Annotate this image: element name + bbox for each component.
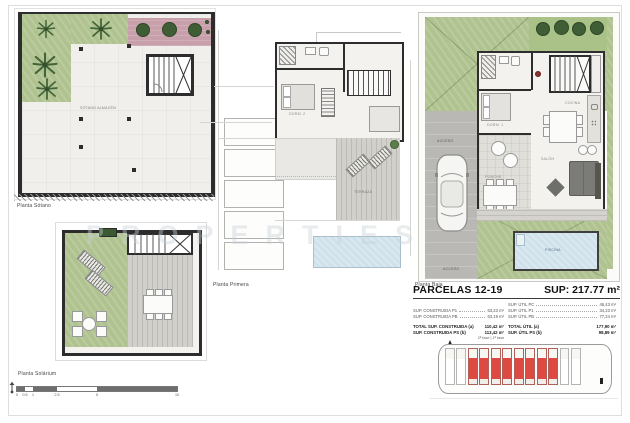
column-marker: [132, 168, 136, 172]
plan-baja: ACCESO ACCESO: [418, 12, 620, 282]
tree-icon: [590, 21, 604, 35]
table-row: SUP. CONSTRUIDA P163,23 m²: [413, 308, 508, 313]
column-marker: [79, 47, 83, 51]
neighbour-structure: [224, 242, 284, 270]
stairs-icon: [347, 70, 391, 96]
site-unit-highlighted: [537, 348, 547, 385]
chair: [72, 311, 83, 322]
scale-tick: 0: [16, 393, 18, 397]
tree-icon: [188, 23, 202, 37]
chair: [96, 311, 107, 322]
projection-line: [200, 122, 272, 123]
kitchen-counter: [587, 95, 601, 143]
chair: [146, 313, 154, 320]
scale-segment: [97, 387, 177, 391]
table-row: SUP. ÚTIL PB77,24 m²: [508, 314, 620, 319]
pillow: [483, 95, 490, 107]
table-cell-empty: [413, 302, 508, 307]
chair: [576, 115, 583, 125]
pillow: [483, 107, 490, 119]
site-units: [445, 348, 581, 385]
summary-table: PARCELAS 12-19 SUP: 217.77 m² SUP. ÚTIL …: [413, 284, 620, 340]
car-icon: [435, 153, 469, 233]
chair: [164, 289, 172, 296]
kitchen-sink: [591, 104, 598, 110]
sink: [499, 56, 509, 64]
column-marker: [127, 117, 131, 121]
table-row: SUP. CONSTRUIDA PB63,19 m²: [413, 314, 508, 319]
pool: [313, 236, 401, 268]
terrace-deck: TERRAZA: [336, 138, 400, 220]
palm-tree-icon: [34, 76, 60, 102]
neighbour-structure: [224, 211, 284, 239]
scale-segment: [17, 387, 25, 391]
pool: PISCINA: [513, 231, 599, 271]
plant-icon: [535, 71, 541, 77]
chair: [72, 326, 83, 337]
site-unit: [456, 348, 466, 385]
partition-wall: [531, 53, 533, 90]
shower: [481, 55, 496, 79]
room-label: PISCINA: [545, 248, 561, 252]
plant-icon: [390, 140, 399, 149]
plot-line: [218, 30, 219, 270]
chair: [543, 115, 550, 125]
table-row-total: SUP. CONSTRUIDA PS (b)113,42 m²: [413, 330, 508, 335]
porch: PORCHE: [479, 135, 531, 209]
scale-tick: 1: [32, 393, 34, 397]
chair: [155, 313, 163, 320]
table-row-total: TOTAL SUP. CONSTRUIDA (a)110,42 m²: [413, 324, 508, 329]
sofa-cushion-line: [583, 162, 584, 195]
planter-box: [99, 228, 117, 237]
benchmark-icon: [8, 381, 16, 394]
neighbour-structure: [224, 180, 284, 208]
room-label: COCINA: [565, 101, 580, 105]
tv-unit: [595, 163, 601, 199]
dining-table: [483, 185, 517, 206]
table-row: SUP. ÚTIL P134,23 m²: [508, 308, 620, 313]
tree-icon: [554, 20, 569, 35]
wc-closet: [591, 55, 601, 93]
round-table: [587, 145, 597, 155]
pool-steps: [516, 234, 525, 246]
chair: [496, 179, 504, 186]
lower-roof: [275, 138, 338, 180]
plan-solarium: [62, 230, 202, 356]
chair: [96, 326, 107, 337]
partition-wall: [277, 68, 343, 70]
site-unit-highlighted: [491, 348, 501, 385]
site-unit-highlighted: [525, 348, 535, 385]
armchair: [546, 178, 564, 196]
projection-line: [214, 86, 274, 87]
baja-building: DORM. 1 COCINA SALÓN: [477, 51, 605, 213]
tree-icon: [162, 22, 177, 37]
pillow: [283, 97, 291, 108]
site-unit-highlighted: [548, 348, 558, 385]
sun-lounger: [367, 145, 392, 169]
primera-building: DORM. 2: [275, 42, 404, 142]
palm-tree-icon: [35, 18, 57, 40]
room-label: ACCESO: [437, 139, 453, 143]
section-hatch: [14, 194, 214, 201]
parcel-title: PARCELAS 12-19: [413, 284, 503, 296]
driveway: ACCESO ACCESO: [425, 111, 477, 279]
site-unit-highlighted: [479, 348, 489, 385]
round-table: [82, 317, 96, 331]
room-label: ACCESO: [443, 267, 459, 271]
pool-deck: [477, 209, 607, 221]
bed: [369, 106, 400, 132]
plot-line: [218, 138, 275, 139]
bed: [481, 93, 511, 121]
site-unit: [560, 348, 570, 385]
plot-line: [275, 220, 400, 221]
summary-header: PARCELAS 12-19 SUP: 217.77 m²: [413, 284, 620, 299]
chair: [543, 127, 550, 137]
tree-icon: [136, 23, 150, 37]
palm-tree-icon: [88, 16, 114, 42]
scale-bar: 0 0.5 1 2.5 5 10: [16, 386, 178, 392]
toilet: [511, 56, 520, 66]
chair: [486, 179, 494, 186]
column-marker: [79, 117, 83, 121]
scale-tick: 2.5: [55, 393, 60, 397]
chair: [155, 289, 163, 296]
site-unit-highlighted: [468, 348, 478, 385]
shower: [279, 46, 296, 65]
site-unit: [571, 348, 581, 385]
room-label: DORM. 2: [289, 112, 305, 116]
chair: [506, 179, 514, 186]
plan-primera: DORM. 2 TERRAZA: [218, 28, 400, 275]
plan-label-sotano: Planta Sótano: [17, 203, 51, 209]
partition-wall: [343, 44, 345, 92]
chair: [576, 127, 583, 137]
wardrobe: [321, 88, 335, 117]
bed: [281, 84, 315, 110]
site-unit-highlighted: [502, 348, 512, 385]
table-spacer: [413, 320, 508, 323]
toilet: [319, 47, 329, 56]
projection-line: [410, 60, 411, 256]
site-marker: [600, 378, 603, 384]
plan-sotano: SÓTANO ALMACÉN: [18, 12, 215, 197]
shrub-icon: [206, 30, 210, 34]
shrub-icon: [205, 20, 209, 24]
stairs-icon: [127, 233, 193, 255]
stove: [591, 120, 596, 126]
column-marker: [79, 145, 83, 149]
scale-segment: [57, 387, 97, 391]
tree-icon: [536, 22, 550, 36]
scale-segment: [25, 387, 33, 391]
scale-tick: 10: [175, 393, 179, 397]
sun-lounger: [345, 153, 370, 177]
total-surface: SUP: 217.77 m²: [544, 284, 620, 296]
plan-label-solarium: Planta Solárium: [18, 371, 56, 377]
dining-table: [143, 295, 173, 314]
room-label-sotano: SÓTANO ALMACÉN: [80, 106, 116, 110]
partition-wall: [479, 89, 531, 91]
summary-rows: SUP. ÚTIL PC46,43 m² SUP. CONSTRUIDA P16…: [413, 302, 620, 335]
scale-tick: 5: [96, 393, 98, 397]
road-line: [430, 398, 618, 399]
chair: [164, 313, 172, 320]
drawing-sheet: PROPERTIES SÓTANO ALMACÉN Plan: [0, 0, 630, 423]
site-key-plan: [428, 342, 620, 412]
round-table: [503, 153, 518, 168]
scale-segment: [33, 387, 57, 391]
sink: [305, 47, 316, 55]
plan-label-primera: Planta Primera: [213, 282, 249, 288]
chair: [146, 289, 154, 296]
round-table: [491, 141, 506, 156]
table-row-total: SUP. ÚTIL PS (b)98,89 m²: [508, 330, 620, 335]
tree-icon: [572, 22, 586, 36]
table-spacer: [508, 320, 620, 323]
room-label: TERRAZA: [354, 190, 372, 194]
site-unit-highlighted: [514, 348, 524, 385]
scale-tick: 0.5: [23, 393, 28, 397]
stairs-icon: [146, 54, 194, 96]
site-unit: [445, 348, 455, 385]
column-marker: [127, 44, 131, 48]
kitchen-table: [549, 111, 577, 143]
stairs-icon: [549, 55, 591, 93]
baja-garden-strip: [607, 17, 613, 269]
pillow: [283, 86, 291, 97]
table-row: SUP. ÚTIL PC46,43 m²: [508, 302, 620, 307]
table-row-total: TOTAL ÚTIL (a)177,90 m²: [508, 324, 620, 329]
phase-footnote: 2ª fase | 1ª fase: [461, 336, 521, 340]
room-label: SALÓN: [541, 157, 554, 161]
room-label: DORM. 1: [487, 123, 503, 127]
